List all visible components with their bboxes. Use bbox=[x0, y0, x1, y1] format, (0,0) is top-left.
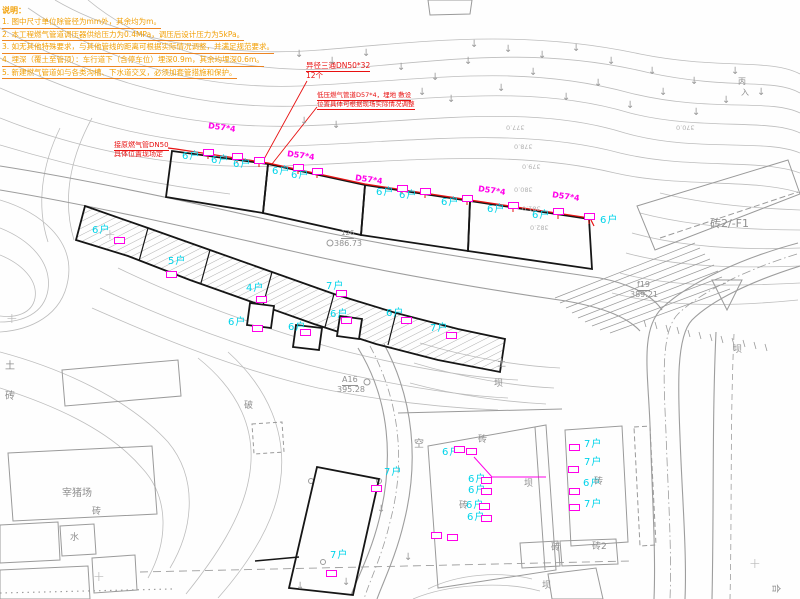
notes-lines: 1. 图中尺寸单位除管径为mm外，其余均为m。2. 本工程燃气管道调压器供给压力… bbox=[2, 18, 432, 79]
buildings-gray bbox=[0, 0, 800, 599]
gas-meter-box bbox=[553, 208, 564, 215]
note-line: 5. 新建燃气管道如与各类沟槽、下水道交叉，必须加套管措施和保护。 bbox=[2, 69, 237, 80]
meter-connector-magenta bbox=[474, 457, 546, 477]
gas-meter-box bbox=[569, 504, 580, 511]
gas-meter-box bbox=[431, 532, 442, 539]
gas-meter-box bbox=[114, 237, 125, 244]
gas-meter-box bbox=[232, 153, 243, 160]
gas-meter-box bbox=[447, 534, 458, 541]
gas-meter-box bbox=[312, 168, 323, 175]
gas-meter-box bbox=[397, 185, 408, 192]
note-line: 3. 如无其他特殊要求，与其他管线的距离可根据实际情况调整，并满足规范要求。 bbox=[2, 43, 274, 54]
gas-meter-box bbox=[462, 195, 473, 202]
house-rows-black bbox=[76, 151, 592, 595]
site-plan-drawing: 说明： 1. 图中尺寸单位除管径为mm外，其余均为m。2. 本工程燃气管道调压器… bbox=[0, 0, 800, 599]
gas-meter-box bbox=[252, 325, 263, 332]
gas-meter-box bbox=[481, 477, 492, 484]
gas-meter-box bbox=[569, 444, 580, 451]
gas-meter-box bbox=[371, 485, 382, 492]
gas-meter-box bbox=[254, 157, 265, 164]
map-linework bbox=[0, 0, 800, 599]
notes-title: 说明： bbox=[2, 5, 432, 16]
note-line: 2. 本工程燃气管道调压器供给压力为0.4MPa，调压后设计压力为5kPa。 bbox=[2, 31, 244, 42]
gas-meter-box bbox=[336, 290, 347, 297]
gas-meter-box bbox=[584, 213, 595, 220]
gas-meter-box bbox=[420, 188, 431, 195]
gas-meter-box bbox=[446, 332, 457, 339]
gas-meter-box bbox=[293, 164, 304, 171]
notes-block: 说明： 1. 图中尺寸单位除管径为mm外，其余均为m。2. 本工程燃气管道调压器… bbox=[2, 5, 432, 81]
gas-meter-box bbox=[568, 466, 579, 473]
gas-meter-box bbox=[454, 446, 465, 453]
gas-meter-box bbox=[466, 448, 477, 455]
gas-meter-box bbox=[203, 149, 214, 156]
gas-meter-box bbox=[569, 488, 580, 495]
contour-lines bbox=[0, 0, 800, 599]
gas-meter-box bbox=[481, 515, 492, 522]
gas-meter-box bbox=[341, 317, 352, 324]
note-line: 1. 图中尺寸单位除管径为mm外，其余均为m。 bbox=[2, 18, 161, 29]
gas-meter-box bbox=[401, 317, 412, 324]
gas-meter-box bbox=[300, 329, 311, 336]
gas-meter-box bbox=[256, 296, 267, 303]
gas-meter-box bbox=[479, 503, 490, 510]
gas-meter-box bbox=[481, 488, 492, 495]
gas-meter-box bbox=[508, 202, 519, 209]
gas-meter-box bbox=[166, 271, 177, 278]
gas-meter-box bbox=[326, 570, 337, 577]
note-line: 4. 埋深（覆土至管顶）：车行道下（含停车位）埋深0.9m，其余均埋深0.6m。 bbox=[2, 56, 264, 67]
